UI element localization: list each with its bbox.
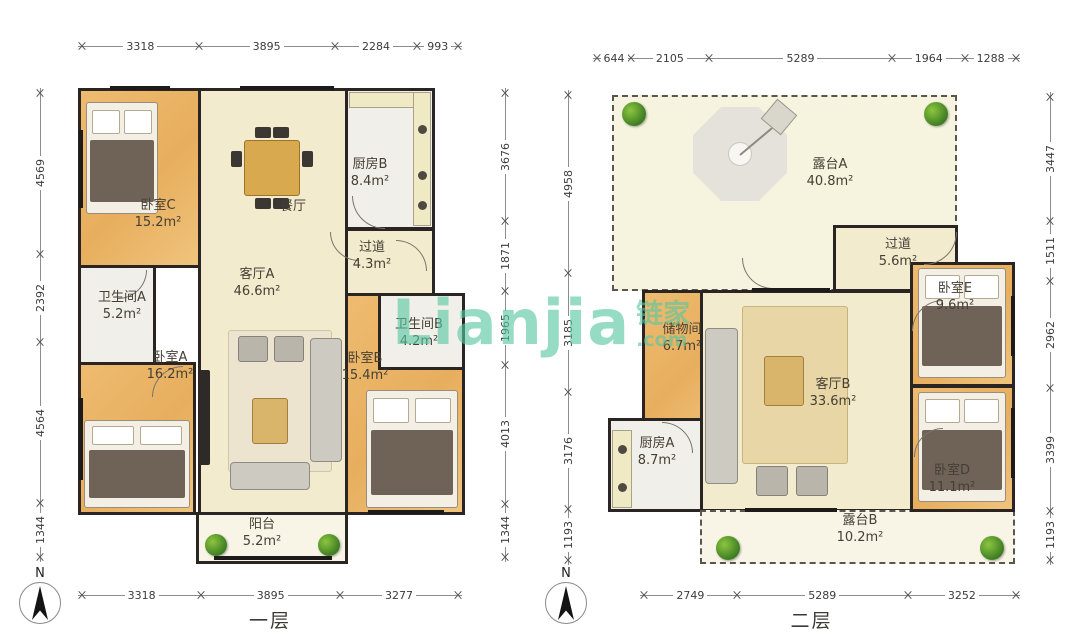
floor1-dimensions-bottom: 3318 3895 3277 <box>78 587 462 603</box>
room-area: 46.6m² <box>215 283 299 300</box>
dimension-value: 1964 <box>912 52 946 65</box>
dining-table-icon <box>244 140 300 196</box>
dimension-value: 4564 <box>34 406 47 440</box>
room-area: 15.4m² <box>326 367 404 384</box>
room-label-bedroom-a: 卧室A 16.2m² <box>130 349 210 383</box>
dimension-value: 1344 <box>34 513 47 547</box>
room-name: 客厅B <box>791 376 875 393</box>
compass-north-label: N <box>18 566 62 581</box>
dimension-tick-icon <box>640 590 648 600</box>
room-name: 卫生间B <box>377 316 461 333</box>
dimension-value: 644 <box>601 52 628 65</box>
room-name: 过道 <box>856 236 940 253</box>
room-label-bath-b: 卫生间B 4.2m² <box>377 316 461 350</box>
room-area: 11.1m² <box>910 479 994 496</box>
dimension-tick-icon <box>413 41 421 51</box>
dimension-value: 3252 <box>945 589 979 602</box>
dimension-tick-icon <box>961 53 969 63</box>
dimension-value: 3176 <box>562 434 575 468</box>
room-name: 卧室D <box>910 462 994 479</box>
dimension-tick-icon <box>454 590 462 600</box>
dimension-value: 3277 <box>382 589 416 602</box>
dimension-tick-icon <box>627 53 635 63</box>
dimension-value: 1193 <box>1044 518 1057 552</box>
room-name: 卧室E <box>913 280 997 297</box>
room-label-kitchen-a: 厨房A 8.7m² <box>615 435 699 469</box>
dimension-value: 2749 <box>673 589 707 602</box>
room-name: 卧室B <box>326 350 404 367</box>
room-label-bedroom-e: 卧室E 9.6m² <box>913 280 997 314</box>
dimension-value: 4569 <box>34 156 47 190</box>
compass-north-label: N <box>544 566 588 581</box>
floor1-dimensions-right: 3676 1871 1965 4013 1344 <box>497 88 513 562</box>
dimension-tick-icon <box>1012 53 1020 63</box>
window-icon <box>110 86 170 90</box>
dimension-tick-icon <box>564 387 572 397</box>
floor2-dimensions-right: 3447 1511 2962 3399 1193 <box>1042 92 1058 565</box>
room-name: 客厅A <box>215 266 299 283</box>
room-label-bedroom-c: 卧室C 15.2m² <box>118 197 198 231</box>
dimension-tick-icon <box>1046 276 1054 286</box>
dimension-value: 1344 <box>499 513 512 547</box>
compass-needle-icon <box>32 586 48 620</box>
room-area: 10.2m² <box>810 529 910 546</box>
room-name: 露台B <box>810 512 910 529</box>
compass-icon <box>545 582 587 624</box>
dimension-value: 3676 <box>499 140 512 174</box>
room-label-hallway2: 过道 5.6m² <box>856 236 940 270</box>
dimension-tick-icon <box>705 53 713 63</box>
dimension-value: 3399 <box>1044 433 1057 467</box>
tv-cabinet-icon <box>199 370 210 465</box>
dimension-tick-icon <box>904 590 912 600</box>
room-label-terrace-b: 露台B 10.2m² <box>810 512 910 546</box>
room-name: 阳台 <box>212 516 312 533</box>
dimension-value: 1288 <box>974 52 1008 65</box>
window-icon <box>79 130 83 208</box>
dimension-value: 2105 <box>653 52 687 65</box>
dimension-value: 4013 <box>499 417 512 451</box>
armchair-icon <box>796 466 828 496</box>
window-icon <box>1011 296 1015 356</box>
compass-needle-icon <box>558 586 574 620</box>
dimension-value: 3447 <box>1044 142 1057 176</box>
dimension-tick-icon <box>331 41 339 51</box>
dimension-tick-icon <box>564 555 572 565</box>
dimension-value: 2962 <box>1044 318 1057 352</box>
dimension-tick-icon <box>501 552 509 562</box>
room-name: 卫生间A <box>80 289 164 306</box>
dimension-value: 3895 <box>250 40 284 53</box>
dimension-tick-icon <box>36 249 44 259</box>
dimension-tick-icon <box>336 590 344 600</box>
dimension-tick-icon <box>197 590 205 600</box>
room-label-kitchen-b: 厨房B 8.4m² <box>330 156 410 190</box>
dimension-tick-icon <box>501 499 509 509</box>
window-icon <box>214 556 332 560</box>
dimension-value: 1871 <box>499 239 512 273</box>
room-label-terrace-a: 露台A 40.8m² <box>788 156 872 190</box>
room-name: 厨房B <box>330 156 410 173</box>
plant-icon <box>716 536 740 560</box>
floor2-caption: 二层 <box>608 606 1015 633</box>
armchair-icon <box>238 336 268 362</box>
dimension-tick-icon <box>36 88 44 98</box>
dimension-tick-icon <box>195 41 203 51</box>
compass-icon <box>19 582 61 624</box>
plant-icon <box>622 102 646 126</box>
floor1-dimensions-top: 3318 3895 2284 993 <box>78 38 462 54</box>
dimension-tick-icon <box>501 360 509 370</box>
room-name: 储物间 <box>638 321 726 338</box>
room-label-living-a: 客厅A 46.6m² <box>215 266 299 300</box>
room-area: 4.3m² <box>330 256 414 273</box>
dimension-tick-icon <box>1046 506 1054 516</box>
coffee-table-icon <box>252 398 288 444</box>
dimension-tick-icon <box>564 90 572 100</box>
room-area: 40.8m² <box>788 173 872 190</box>
floor2-dimensions-left: 4958 3185 3176 1193 <box>560 90 576 565</box>
room-area: 8.7m² <box>615 452 699 469</box>
dimension-tick-icon <box>564 504 572 514</box>
room-label-balcony: 阳台 5.2m² <box>212 516 312 550</box>
floor1-dimensions-left: 4569 2392 4564 1344 <box>32 88 48 562</box>
floor-plan-canvas: 卧室C 15.2m² 餐厅 厨房B 8.4m² 过道 4.3m² 客厅A 46.… <box>0 0 1080 638</box>
compass-floor2: N <box>544 566 588 624</box>
armchair-icon <box>756 466 788 496</box>
dimension-tick-icon <box>501 88 509 98</box>
room-label-bedroom-b: 卧室B 15.4m² <box>326 350 404 384</box>
room-name: 露台A <box>788 156 872 173</box>
compass-floor1: N <box>18 566 62 624</box>
dimension-tick-icon <box>1046 555 1054 565</box>
dimension-value: 1193 <box>562 518 575 552</box>
window-icon <box>1011 408 1015 478</box>
plant-icon <box>318 534 340 556</box>
bed-icon <box>84 420 190 508</box>
room-area: 5.2m² <box>212 533 312 550</box>
dimension-tick-icon <box>78 41 86 51</box>
room-label-dining: 餐厅 <box>263 198 323 215</box>
dimension-tick-icon <box>1046 216 1054 226</box>
dimension-value: 3895 <box>254 589 288 602</box>
armchair-icon <box>274 336 304 362</box>
dimension-value: 2284 <box>359 40 393 53</box>
room-label-living-b: 客厅B 33.6m² <box>791 376 875 410</box>
dimension-tick-icon <box>501 286 509 296</box>
window-icon <box>752 288 830 292</box>
plant-icon <box>980 536 1004 560</box>
dimension-value: 993 <box>424 40 451 53</box>
room-area: 5.6m² <box>856 253 940 270</box>
window-icon <box>240 86 334 90</box>
dimension-tick-icon <box>501 216 509 226</box>
dimension-tick-icon <box>36 337 44 347</box>
room-name: 餐厅 <box>263 198 323 215</box>
room-label-storage: 储物间 6.7m² <box>638 321 726 355</box>
dimension-value: 3318 <box>125 589 159 602</box>
room-name: 厨房A <box>615 435 699 452</box>
window-icon <box>79 398 83 480</box>
room-name: 卧室C <box>118 197 198 214</box>
room-label-bath-a: 卫生间A 5.2m² <box>80 289 164 323</box>
room-label-hallway1: 过道 4.3m² <box>330 239 414 273</box>
room-area: 33.6m² <box>791 393 875 410</box>
dimension-tick-icon <box>78 590 86 600</box>
floor2-dimensions-top: 644 2105 5289 1964 1288 <box>593 50 1020 66</box>
kitchen-counter-icon <box>413 92 431 226</box>
dimension-value: 1965 <box>499 311 512 345</box>
floor2-dimensions-bottom: 2749 5289 3252 <box>640 587 1020 603</box>
dimension-tick-icon <box>454 41 462 51</box>
dimension-value: 3185 <box>562 316 575 350</box>
window-icon <box>368 510 444 514</box>
room-area: 16.2m² <box>130 366 210 383</box>
room-name: 卧室A <box>130 349 210 366</box>
dimension-value: 1511 <box>1044 234 1057 268</box>
dimension-value: 4958 <box>562 167 575 201</box>
floor1-caption: 一层 <box>78 606 462 633</box>
sofa-icon <box>230 462 310 490</box>
dimension-tick-icon <box>1046 383 1054 393</box>
room-area: 15.2m² <box>118 214 198 231</box>
dimension-value: 5289 <box>783 52 817 65</box>
dimension-value: 2392 <box>34 281 47 315</box>
room-area: 9.6m² <box>913 297 997 314</box>
dimension-value: 5289 <box>805 589 839 602</box>
room-area: 6.7m² <box>638 338 726 355</box>
dimension-tick-icon <box>36 498 44 508</box>
plant-icon <box>924 102 948 126</box>
dimension-tick-icon <box>733 590 741 600</box>
dimension-tick-icon <box>888 53 896 63</box>
room-area: 8.4m² <box>330 173 410 190</box>
room-name: 过道 <box>330 239 414 256</box>
room-area: 5.2m² <box>80 306 164 323</box>
room-area: 4.2m² <box>377 333 461 350</box>
dimension-tick-icon <box>36 552 44 562</box>
dimension-tick-icon <box>1046 92 1054 102</box>
dimension-tick-icon <box>564 268 572 278</box>
dimension-value: 3318 <box>123 40 157 53</box>
bed-icon <box>366 390 458 508</box>
dimension-tick-icon <box>1012 590 1020 600</box>
room-label-bedroom-d: 卧室D 11.1m² <box>910 462 994 496</box>
